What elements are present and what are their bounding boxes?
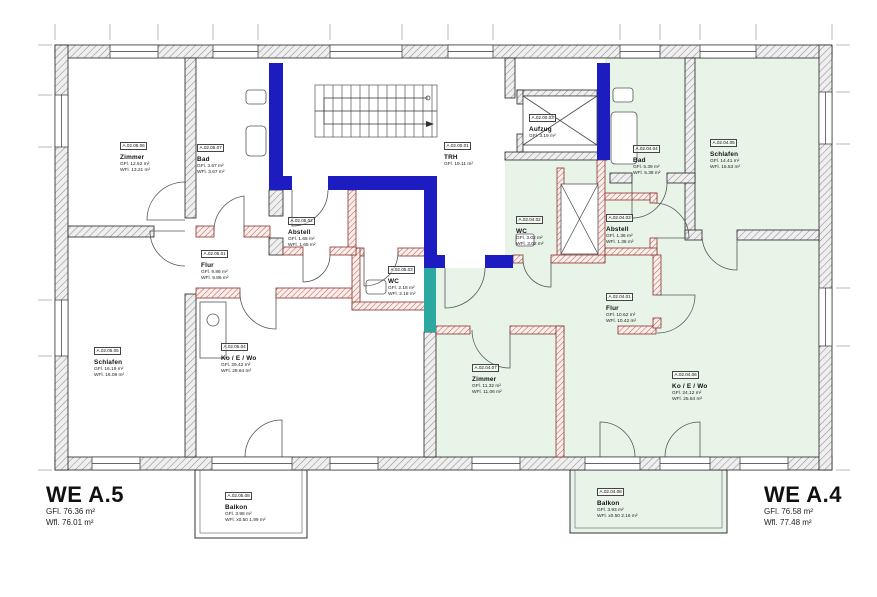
- staircase: [315, 85, 437, 137]
- apartment-wfl: Wfl. 77.48 m²: [764, 517, 842, 528]
- room-label-a4-schlafen: A.02.04.05 Schlafen GFl. 14.41 m² WFl. 1…: [710, 130, 740, 172]
- room-name: Schlafen: [710, 151, 740, 159]
- apartment-name: WE A.5: [46, 483, 124, 506]
- room-code: A.02.05.07: [197, 144, 224, 152]
- room-label-a4-wc: A.02.04.02 WC GFl. 3.02 m² WFl. 3.02 m²: [516, 207, 543, 249]
- room-code: A.02.04.07: [472, 364, 499, 372]
- room-wfl: WFl. 25.64 m²: [672, 397, 707, 403]
- room-name: Bad: [633, 157, 660, 165]
- room-label-a5-koewo: A.02.05.04 Ko / E / Wo GFl. 29.42 m² WFl…: [221, 334, 256, 376]
- toilet-icon: [613, 88, 633, 102]
- room-label-a5-schlafen: A.02.05.05 Schlafen GFl. 16.19 m² WFl. 1…: [94, 338, 124, 380]
- floor-plan-page: A.02.05.06 Zimmer GFl. 12.52 m² WFl. 13.…: [0, 0, 877, 597]
- room-code: A.02.05.02: [288, 217, 315, 225]
- room-wfl: WFl. 1.36 m²: [606, 240, 633, 246]
- room-code: A.02.04.04: [633, 145, 660, 153]
- room-label-a4-flur: A.02.04.01 Flur GFl. 10.62 m² WFl. 10.42…: [606, 284, 636, 326]
- room-label-a4-balkon: A.02.04.08 Balkon GFl. 3.93 m² WFl. x0.5…: [597, 479, 638, 521]
- room-wfl: WFl. 29.64 m²: [221, 369, 256, 375]
- apartment-summary-a5: WE A.5 GFl. 76.36 m² Wfl. 76.01 m²: [46, 483, 124, 528]
- room-wfl: WFl. 1.65 m²: [288, 243, 315, 249]
- room-label-a4-bad: A.02.04.04 Bad GFl. 5.39 m² WFl. 5.38 m²: [633, 136, 660, 178]
- room-code: A.02.05.04: [221, 343, 248, 351]
- room-name: Zimmer: [120, 154, 150, 162]
- room-gfl: GFl. 19.11 m²: [444, 162, 473, 168]
- room-name: Ko / E / Wo: [672, 383, 707, 391]
- floor-plan-drawing: [0, 0, 877, 597]
- room-wfl: WFl. x0.50 1.99 m²: [225, 518, 266, 524]
- apartment-gfl: GFl. 76.36 m²: [46, 506, 124, 517]
- toilet-icon: [366, 280, 386, 294]
- room-label-a5-bad: A.02.05.07 Bad GFl. 3.67 m² WFl. 3.67 m²: [197, 135, 224, 177]
- room-code: A.02.05.01: [201, 250, 228, 258]
- room-label-a5-flur: A.02.05.01 Flur GFl. 9.86 m² WFl. 9.86 m…: [201, 241, 228, 283]
- shower-icon: [561, 184, 598, 254]
- room-code: A.02.05.08: [225, 492, 252, 500]
- room-wfl: WFl. 2.18 m²: [388, 292, 415, 298]
- room-name: WC: [516, 228, 543, 236]
- toilet-icon: [246, 90, 266, 104]
- apartment-wfl: Wfl. 76.01 m²: [46, 517, 124, 528]
- room-wfl: WFl. 16.08 m²: [94, 373, 124, 379]
- room-name: Balkon: [225, 504, 266, 512]
- room-wfl: WFl. 3.67 m²: [197, 170, 224, 176]
- room-wfl: WFl. 5.38 m²: [633, 171, 660, 177]
- room-wfl: WFl. 10.42 m²: [606, 319, 636, 325]
- apartment-summary-a4: WE A.4 GFl. 76.58 m² Wfl. 77.48 m²: [764, 483, 842, 528]
- room-label-trh: A.02.00.01 TRH GFl. 19.11 m²: [444, 133, 473, 168]
- room-name: Ko / E / Wo: [221, 355, 256, 363]
- room-name: Aufzug: [529, 126, 556, 134]
- room-code: A.02.04.08: [597, 488, 624, 496]
- room-label-a5-balkon: A.02.05.08 Balkon GFl. 3.98 m² WFl. x0.5…: [225, 483, 266, 525]
- room-code: A.02.05.03: [388, 266, 415, 274]
- room-code: A.02.00.01: [444, 142, 471, 150]
- apartment-name: WE A.4: [764, 483, 842, 506]
- room-label-a4-zimmer: A.02.04.07 Zimmer GFl. 11.32 m² WFl. 11.…: [472, 355, 502, 397]
- room-name: TRH: [444, 154, 473, 162]
- room-code: A.02.00.03: [529, 114, 556, 122]
- room-label-a4-koewo: A.02.04.06 Ko / E / Wo GFl. 24.12 m² WFl…: [672, 362, 707, 404]
- sink-icon: [246, 126, 266, 156]
- room-name: Abstell: [606, 226, 633, 234]
- room-wfl: WFl. 13.21 m²: [120, 168, 150, 174]
- room-label-a5-abstell: A.02.05.02 Abstell GFl. 1.65 m² WFl. 1.6…: [288, 208, 315, 250]
- room-label-aufzug: A.02.00.03 Aufzug GFl. 3.19 m²: [529, 105, 556, 140]
- room-code: A.02.04.05: [710, 139, 737, 147]
- room-name: Schlafen: [94, 359, 124, 367]
- room-wfl: WFl. 3.02 m²: [516, 242, 543, 248]
- room-wfl: WFl. 9.86 m²: [201, 276, 228, 282]
- room-name: Balkon: [597, 500, 638, 508]
- room-code: A.02.04.02: [516, 216, 543, 224]
- room-code: A.02.04.01: [606, 293, 633, 301]
- core-wall-teal: [424, 268, 436, 332]
- balcony-right: [570, 470, 727, 533]
- room-wfl: WFl. x0.50 2.16 m²: [597, 514, 638, 520]
- room-name: Flur: [201, 262, 228, 270]
- room-name: Zimmer: [472, 376, 502, 384]
- room-code: A.02.04.03: [606, 214, 633, 222]
- room-code: A.02.05.05: [94, 347, 121, 355]
- room-wfl: WFl. 15.53 m²: [710, 165, 740, 171]
- room-label-a5-wc: A.02.05.03 WC GFl. 2.18 m² WFl. 2.18 m²: [388, 257, 415, 299]
- apartment-gfl: GFl. 76.58 m²: [764, 506, 842, 517]
- room-gfl: GFl. 3.19 m²: [529, 134, 556, 140]
- room-code: A.02.04.06: [672, 371, 699, 379]
- room-name: Bad: [197, 156, 224, 164]
- room-wfl: WFl. 11.06 m²: [472, 390, 502, 396]
- room-code: A.02.05.06: [120, 142, 147, 150]
- room-name: Abstell: [288, 229, 315, 237]
- room-label-a5-zimmer: A.02.05.06 Zimmer GFl. 12.52 m² WFl. 13.…: [120, 133, 150, 175]
- room-name: WC: [388, 278, 415, 286]
- room-label-a4-abstell: A.02.04.03 Abstell GFl. 1.36 m² WFl. 1.3…: [606, 205, 633, 247]
- room-name: Flur: [606, 305, 636, 313]
